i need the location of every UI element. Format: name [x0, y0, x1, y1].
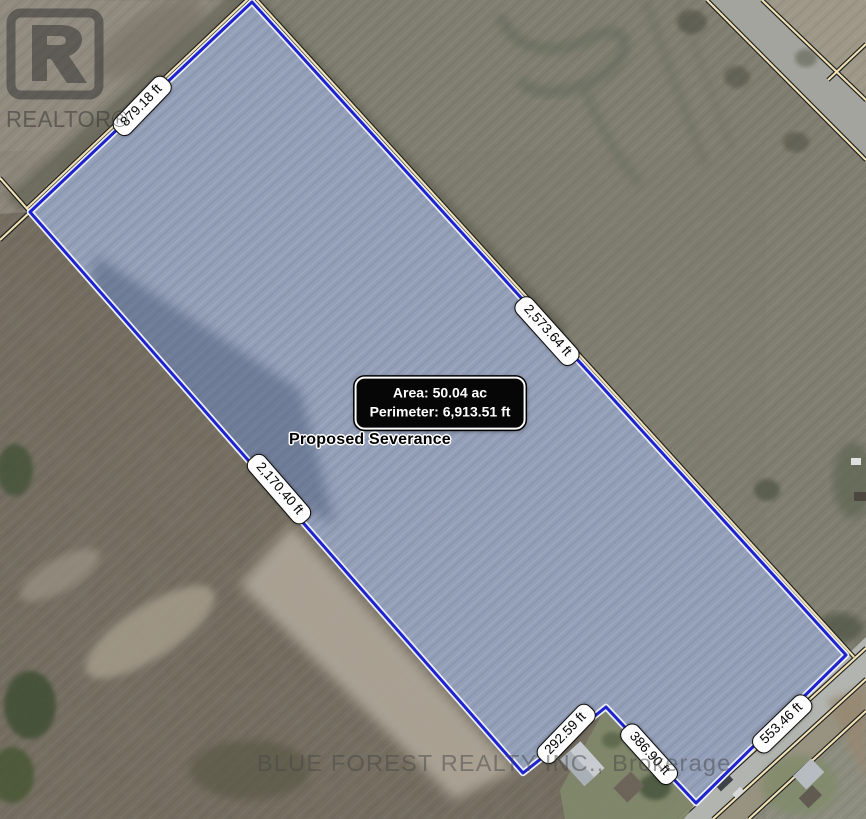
perimeter-value: Perimeter: 6,913.51 ft [370, 403, 511, 422]
area-perimeter-callout: Area: 50.04 ac Perimeter: 6,913.51 ft [355, 377, 526, 430]
realtor-logo-text: REALTOR® [6, 106, 128, 133]
listing-photo: 879.18 ft 2,573.64 ft 2,170.40 ft 292.59… [0, 0, 866, 819]
parcel-title: Proposed Severance [289, 431, 451, 449]
brokerage-watermark: BLUE FOREST REALTY INC., Brokerage [257, 750, 731, 777]
area-value: Area: 50.04 ac [370, 384, 511, 403]
realtor-logo: REALTOR® [6, 8, 133, 133]
realtor-r-icon [6, 8, 104, 100]
